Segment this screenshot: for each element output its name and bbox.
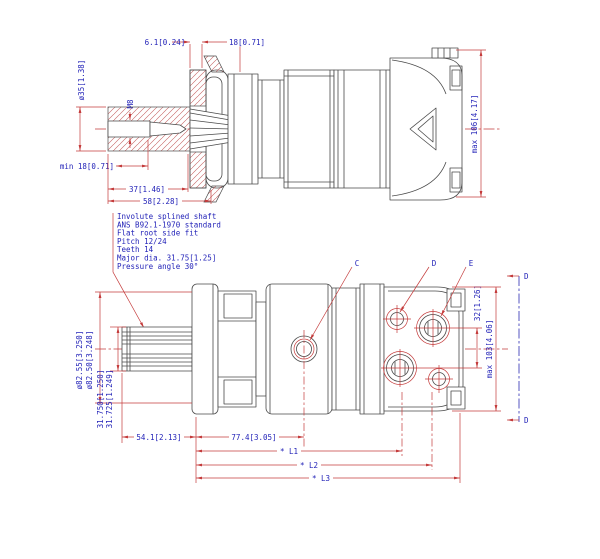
label-port-d: D bbox=[432, 259, 437, 268]
label-port-c: C bbox=[355, 259, 360, 268]
section-label-bottom: D bbox=[524, 416, 529, 425]
dim-shaft-diameter: ø35[1.38] bbox=[77, 60, 86, 101]
port-boss-bottom bbox=[447, 387, 465, 409]
side-view-body bbox=[228, 70, 390, 188]
dim-thread-depth: min 18[0.71] bbox=[60, 162, 114, 171]
side-view-shaft-section bbox=[108, 107, 232, 151]
dim-flange-thickness: 6.1[0.24] bbox=[145, 38, 186, 47]
dim-port-c-distance: 77.4[3.05] bbox=[231, 433, 276, 442]
side-view: 6.1[0.24] 18[0.71] ø35[1.38] M8 min 18[0… bbox=[60, 38, 500, 207]
plan-view-flange bbox=[192, 284, 266, 414]
dim-overall-height: max 106[4.17] bbox=[470, 95, 479, 154]
dim-port-spacing: 32[1.26] bbox=[473, 285, 482, 321]
dim-shaft-length: 58[2.28] bbox=[143, 197, 179, 206]
dim-pilot-diameter-min: ø82.50[3.248] bbox=[85, 331, 94, 390]
plan-view-body bbox=[266, 284, 384, 414]
cad-drawing-canvas: 6.1[0.24] 18[0.71] ø35[1.38] M8 min 18[0… bbox=[0, 0, 600, 559]
label-port-e: E bbox=[469, 259, 474, 268]
plan-view-port-housing bbox=[384, 287, 465, 411]
dim-spline-length: 37[1.46] bbox=[129, 185, 165, 194]
dim-length-l2: * L2 bbox=[300, 461, 318, 470]
dim-shaft-extension: 54.1[2.13] bbox=[136, 433, 181, 442]
note-line-7: Pressure angle 30° bbox=[117, 262, 198, 271]
section-label-top: D bbox=[524, 272, 529, 281]
dim-shaft-diameter-min: 31.725[1.249] bbox=[105, 370, 114, 429]
dim-overall-width: max 103[4.06] bbox=[485, 320, 494, 379]
dim-pilot-diameter-max: ø82.55[3.250] bbox=[75, 331, 84, 390]
port-boss-top bbox=[447, 289, 465, 311]
m8-tapped-hole bbox=[108, 121, 150, 137]
top-boss bbox=[432, 48, 458, 58]
section-line-dd: D D bbox=[507, 272, 529, 425]
side-view-end-cap bbox=[390, 48, 462, 200]
plan-view-shaft bbox=[122, 327, 192, 371]
plan-view: C D E ø82.55[3.250] ø82.50[3.248] 31.750… bbox=[75, 259, 529, 483]
dim-pilot-length: 18[0.71] bbox=[229, 38, 265, 47]
motor-drawing: 6.1[0.24] 18[0.71] ø35[1.38] M8 min 18[0… bbox=[0, 0, 600, 559]
dim-shaft-diameter-max: 31.750[1.250] bbox=[96, 370, 105, 429]
dim-length-l1: * L1 bbox=[280, 447, 298, 456]
dim-thread-size: M8 bbox=[126, 99, 135, 109]
dim-length-l3: * L3 bbox=[312, 474, 330, 483]
